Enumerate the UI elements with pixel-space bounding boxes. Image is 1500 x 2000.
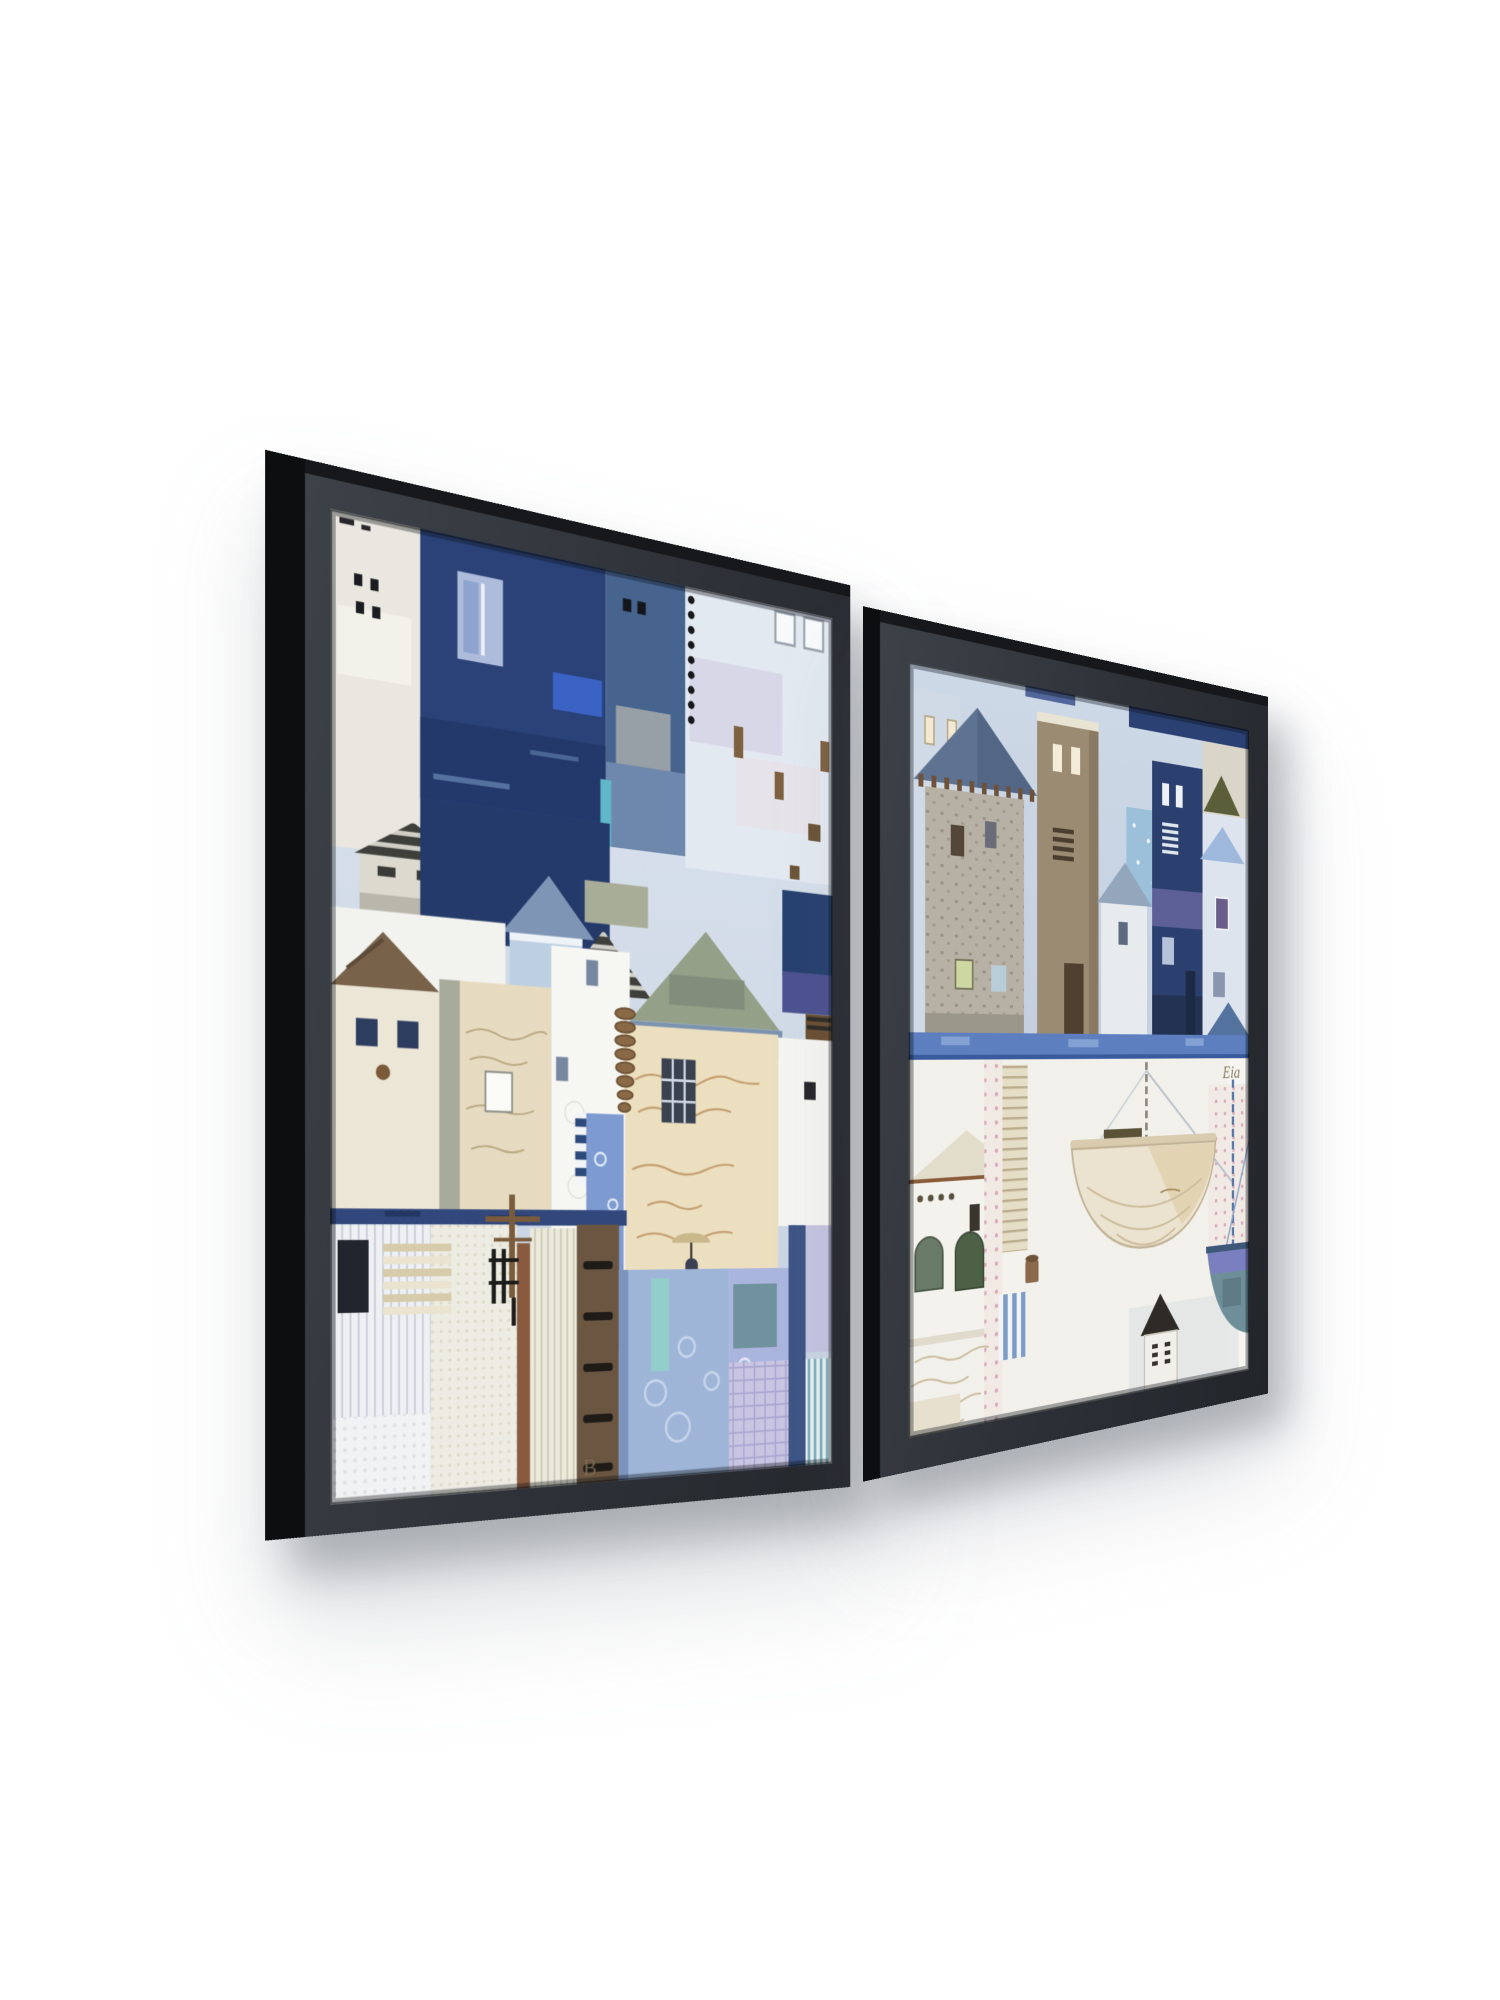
- right-framed-print: Eia: [880, 622, 1446, 1478]
- product-photo-scene: B: [0, 0, 1500, 2000]
- left-artwork-collage: B: [330, 509, 832, 1505]
- right-art-green-door: [956, 1231, 984, 1290]
- right-art-awning: [999, 1291, 1027, 1361]
- right-art-pale-house: [1200, 812, 1249, 1035]
- right-art-navy-house: [1152, 761, 1202, 1035]
- right-art-pot: [1025, 1260, 1038, 1284]
- right-art-harbor-band: Eia: [909, 1058, 1249, 1438]
- right-frame: Eia: [880, 622, 1268, 1478]
- right-art-arch-door: [915, 1236, 943, 1292]
- right-art-tan-house: [1037, 711, 1098, 1034]
- left-frame: B: [305, 473, 850, 1537]
- right-art-ribbon: [909, 1032, 1249, 1060]
- right-artwork-collage: Eia: [909, 662, 1249, 1439]
- right-art-ribbed-strip: [1002, 1065, 1027, 1253]
- left-art-letter: B: [583, 1455, 597, 1481]
- right-art-dotted-strip: [984, 1059, 1002, 1423]
- right-art-letters: Eia: [1222, 1063, 1240, 1083]
